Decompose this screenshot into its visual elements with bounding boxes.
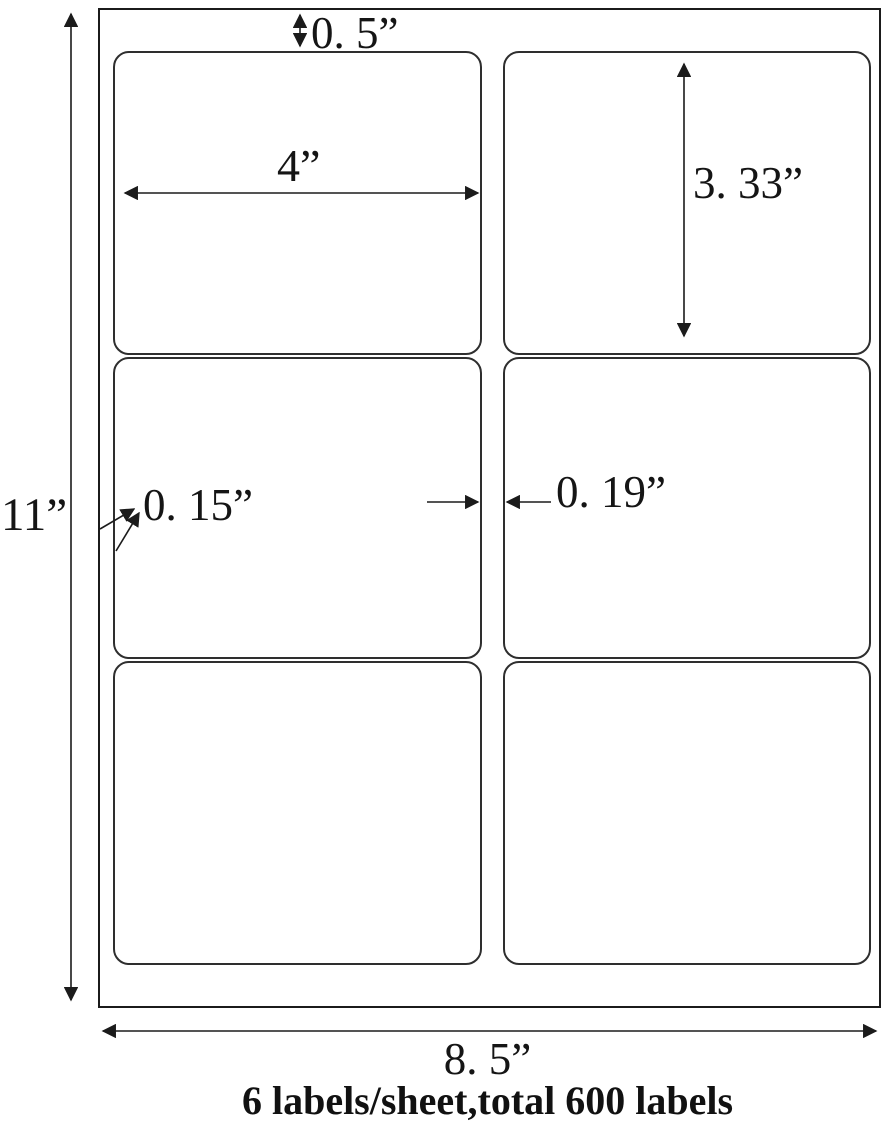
- label-width-dimension: 4”: [277, 143, 320, 189]
- label-cell: [113, 661, 482, 965]
- label-cell: [113, 51, 482, 355]
- sheet-width-dimension: 8. 5”: [98, 1037, 877, 1082]
- label-cell: [503, 51, 871, 355]
- center-gap-dimension: 0. 19”: [556, 470, 666, 515]
- sheet-height-dimension: 11”: [1, 492, 67, 539]
- label-sheet-diagram: 0. 5” 4” 3. 33” 0. 15” 0. 19” 11” 8. 5” …: [0, 0, 890, 1128]
- side-margin-dimension: 0. 15”: [143, 483, 253, 528]
- top-margin-dimension: 0. 5”: [311, 11, 398, 56]
- label-cell: [503, 661, 871, 965]
- label-height-dimension: 3. 33”: [693, 161, 803, 206]
- caption-text: 6 labels/sheet,total 600 labels: [88, 1081, 887, 1121]
